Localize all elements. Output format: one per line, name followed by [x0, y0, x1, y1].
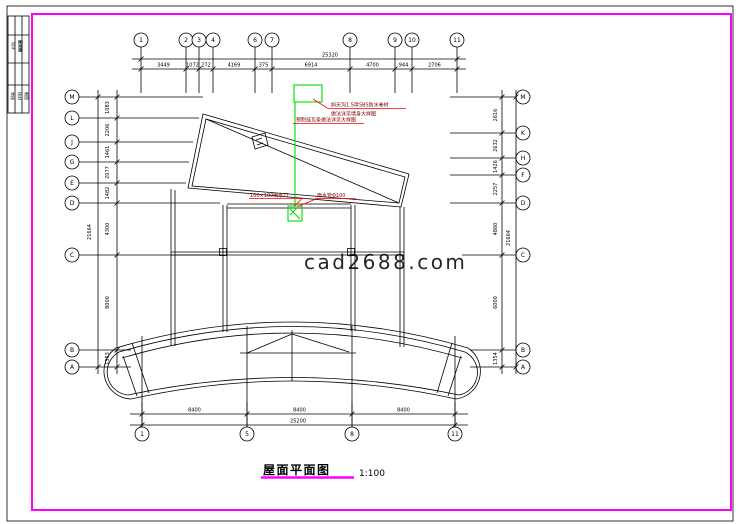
dimension-text: 8400 — [188, 408, 201, 414]
axis-circle-label: 8 — [348, 37, 352, 44]
annotation-text: 斜天沟1.5厚SBS防水卷材 — [331, 102, 389, 109]
axis-circle-label: G — [70, 159, 75, 166]
drawing-title-group: 屋面平面图 1:100 — [261, 463, 385, 479]
dimension-text: 1072 — [186, 63, 199, 69]
dimension-text: 2257 — [493, 183, 499, 196]
axis-circle-label: M — [69, 94, 74, 101]
axis-circle-label: 1 — [140, 431, 144, 438]
axis-circle-label: 9 — [393, 37, 397, 44]
axis-circle-label: D — [70, 200, 75, 207]
dimension-text: 8400 — [293, 408, 306, 414]
dimension-text: 1353 — [105, 352, 111, 365]
axis-grid: 12346789101115811MLJGEDCBAMKHFDCBA — [65, 33, 530, 441]
dimension-text: 944 — [399, 63, 409, 69]
axis-circle-label: 8 — [350, 431, 354, 438]
dimension-text: 8000 — [105, 296, 111, 309]
cad-drawing-sheet: 设计屋面图审核校对制图 cad2688.com — [0, 0, 739, 524]
axis-circle-label: B — [70, 347, 74, 354]
axis-circle-label: C — [70, 252, 74, 259]
annotation-text: 雨水管Φ100 — [317, 192, 345, 199]
title-block-cell: 审核 — [10, 92, 16, 100]
axis-circle-label: F — [521, 172, 525, 179]
dimension-text: 2077 — [105, 166, 111, 179]
dimension-text: 2206 — [105, 124, 111, 137]
dimension-text: 25320 — [322, 53, 338, 59]
axis-circle-label: 11 — [451, 431, 459, 438]
axis-circle-label: 11 — [453, 37, 461, 44]
axis-circle-label: 1 — [139, 37, 143, 44]
dimension-text: 1354 — [493, 352, 499, 365]
dimension-text: 25200 — [290, 419, 306, 425]
title-block-cell: 屋面图 — [18, 40, 24, 52]
axis-circle-label: 10 — [408, 37, 416, 44]
dimension-text: 6914 — [305, 63, 318, 69]
axis-circle-label: 7 — [270, 37, 274, 44]
drain-line — [288, 85, 322, 221]
axis-circle-label: 2 — [184, 37, 188, 44]
axis-circle-label: 4 — [211, 37, 215, 44]
roof-outline — [188, 114, 409, 207]
title-block-cell: 制图 — [24, 92, 30, 100]
dimension-text: 4169 — [228, 63, 241, 69]
title-block-cell: 设计 — [11, 42, 17, 50]
dimension-text: 6000 — [493, 296, 499, 309]
axis-circle-label: E — [70, 180, 74, 187]
drawing-scale: 1:100 — [359, 469, 385, 479]
dimension-text: 1083 — [105, 101, 111, 114]
dimension-text: 3449 — [157, 63, 170, 69]
watermark-text: cad2688.com — [304, 250, 467, 274]
axis-circle-label: 3 — [197, 37, 201, 44]
axis-circle-label: D — [521, 200, 526, 207]
dimension-text: 4700 — [366, 63, 379, 69]
annotation-text: 做法详见墙身大样图 — [331, 111, 376, 118]
axis-circle-label: 6 — [253, 37, 257, 44]
annotation-text: 100×100雨水口 — [250, 192, 288, 199]
dimension-text: 1426 — [493, 160, 499, 173]
annotation-texts: 斜天沟1.5厚SBS防水卷材 做法详见墙身大样图 预制挂瓦条做法详见大样图 10… — [250, 102, 389, 200]
drawing-canvas: 设计屋面图审核校对制图 cad2688.com — [0, 0, 739, 524]
dimension-chains: 2532034491072272416937569144700944270684… — [87, 53, 519, 428]
axis-circle-label: J — [70, 139, 73, 146]
dimension-text: 375 — [259, 63, 269, 69]
dimension-text: 21664 — [506, 230, 512, 246]
dimension-text: 21664 — [87, 224, 93, 240]
axis-circle-label: 5 — [245, 431, 249, 438]
dimension-text: 4860 — [493, 223, 499, 236]
dimension-text: 8400 — [397, 408, 410, 414]
axis-circle-label: C — [521, 252, 525, 259]
dimension-text: 2706 — [428, 63, 441, 69]
annotation-text: 预制挂瓦条做法详见大样图 — [296, 117, 356, 124]
dimension-text: 272 — [201, 63, 211, 69]
title-block-cell: 校对 — [17, 92, 23, 100]
axis-circle-label: M — [520, 94, 525, 101]
drawing-title: 屋面平面图 — [263, 463, 331, 477]
roof-vent-icon — [252, 133, 268, 149]
axis-circle-label: H — [521, 155, 526, 162]
axis-circle-label: B — [521, 347, 525, 354]
title-block: 设计屋面图审核校对制图 — [8, 16, 30, 113]
annotation-leaders — [249, 99, 406, 207]
dimension-text: 4300 — [105, 223, 111, 236]
dimension-text: 1482 — [105, 187, 111, 200]
dimension-text: 2616 — [493, 109, 499, 122]
drain-detail-box — [294, 85, 322, 102]
dimension-text: 2632 — [493, 139, 499, 152]
dimension-text: 1461 — [105, 146, 111, 159]
